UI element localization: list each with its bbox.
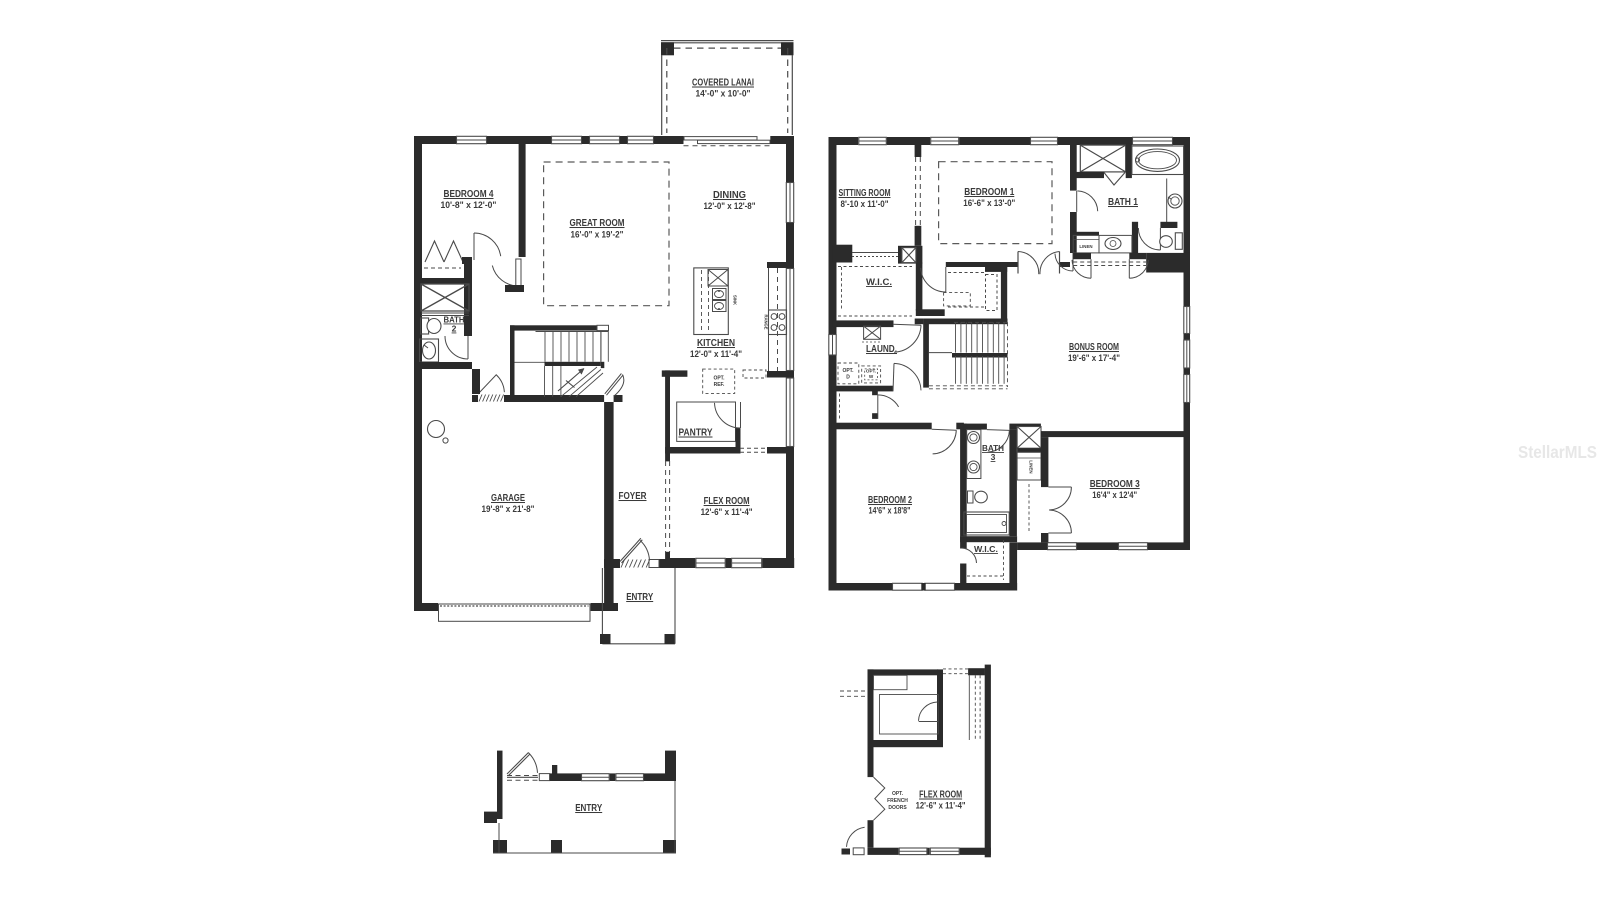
svg-text:14'-0" x 10'-0": 14'-0" x 10'-0" bbox=[696, 89, 751, 100]
svg-text:FRENCH: FRENCH bbox=[887, 798, 908, 804]
svg-text:BEDROOM 1: BEDROOM 1 bbox=[964, 187, 1014, 198]
svg-text:12'-6" x 11'-4": 12'-6" x 11'-4" bbox=[701, 507, 753, 518]
svg-text:BEDROOM 3: BEDROOM 3 bbox=[1090, 479, 1140, 490]
svg-text:OPT.: OPT. bbox=[842, 368, 854, 374]
svg-text:16'4" x 12'4": 16'4" x 12'4" bbox=[1092, 490, 1137, 501]
svg-text:FOYER: FOYER bbox=[619, 491, 648, 502]
svg-text:14'6" x 18'8": 14'6" x 18'8" bbox=[869, 506, 911, 517]
svg-text:GARAGE: GARAGE bbox=[491, 493, 525, 504]
svg-text:GREAT ROOM: GREAT ROOM bbox=[570, 218, 625, 229]
svg-text:8'-10 x 11'-0": 8'-10 x 11'-0" bbox=[841, 199, 889, 210]
svg-text:16'-0" x 19'-2": 16'-0" x 19'-2" bbox=[571, 230, 624, 241]
svg-text:10'-8" x 12'-0": 10'-8" x 12'-0" bbox=[441, 200, 497, 211]
svg-text:12'-6" x 11'-4": 12'-6" x 11'-4" bbox=[916, 801, 966, 812]
svg-text:12'-0" x 12'-8": 12'-0" x 12'-8" bbox=[704, 201, 756, 212]
svg-text:D: D bbox=[846, 375, 850, 381]
svg-text:12'-0" x 11'-4": 12'-0" x 11'-4" bbox=[690, 349, 742, 360]
svg-text:REF.: REF. bbox=[714, 382, 725, 388]
svg-text:W.I.C.: W.I.C. bbox=[974, 544, 998, 554]
svg-text:BATH 1: BATH 1 bbox=[1108, 197, 1138, 208]
svg-text:19'-6" x 17'-4": 19'-6" x 17'-4" bbox=[1068, 353, 1120, 364]
svg-text:LAUND.: LAUND. bbox=[866, 344, 897, 355]
svg-text:W.I.C.: W.I.C. bbox=[866, 277, 892, 287]
svg-text:ENTRY: ENTRY bbox=[575, 803, 602, 814]
svg-text:BONUS ROOM: BONUS ROOM bbox=[1069, 342, 1119, 353]
svg-text:RANGE: RANGE bbox=[764, 314, 769, 329]
svg-text:BEDROOM 2: BEDROOM 2 bbox=[868, 495, 912, 506]
svg-text:OPT.: OPT. bbox=[866, 369, 876, 374]
svg-text:PANTRY: PANTRY bbox=[679, 428, 713, 439]
svg-text:19'-8" x 21'-8": 19'-8" x 21'-8" bbox=[482, 504, 535, 515]
svg-text:16'-6" x 13'-0": 16'-6" x 13'-0" bbox=[963, 198, 1015, 209]
svg-text:DOORS: DOORS bbox=[888, 805, 907, 811]
svg-text:StellarMLS: StellarMLS bbox=[1518, 442, 1597, 462]
svg-text:FLEX ROOM: FLEX ROOM bbox=[704, 496, 750, 507]
svg-text:3: 3 bbox=[991, 452, 996, 462]
svg-text:DINING: DINING bbox=[713, 190, 746, 201]
svg-text:FLEX ROOM: FLEX ROOM bbox=[919, 790, 962, 801]
svg-text:BEDROOM 4: BEDROOM 4 bbox=[444, 189, 494, 200]
svg-text:ENTRY: ENTRY bbox=[626, 592, 653, 603]
svg-text:LINEN: LINEN bbox=[1079, 244, 1092, 249]
svg-text:OPT.: OPT. bbox=[713, 376, 725, 382]
svg-text:LINEN: LINEN bbox=[1029, 460, 1034, 473]
svg-text:COVERED LANAI: COVERED LANAI bbox=[692, 78, 754, 89]
svg-text:KITCHEN: KITCHEN bbox=[697, 338, 735, 349]
svg-text:W: W bbox=[869, 374, 874, 379]
svg-text:2: 2 bbox=[452, 324, 457, 334]
svg-text:OPT.: OPT. bbox=[892, 791, 904, 797]
svg-text:SINK: SINK bbox=[733, 295, 738, 305]
svg-text:SITTING ROOM: SITTING ROOM bbox=[839, 188, 891, 199]
